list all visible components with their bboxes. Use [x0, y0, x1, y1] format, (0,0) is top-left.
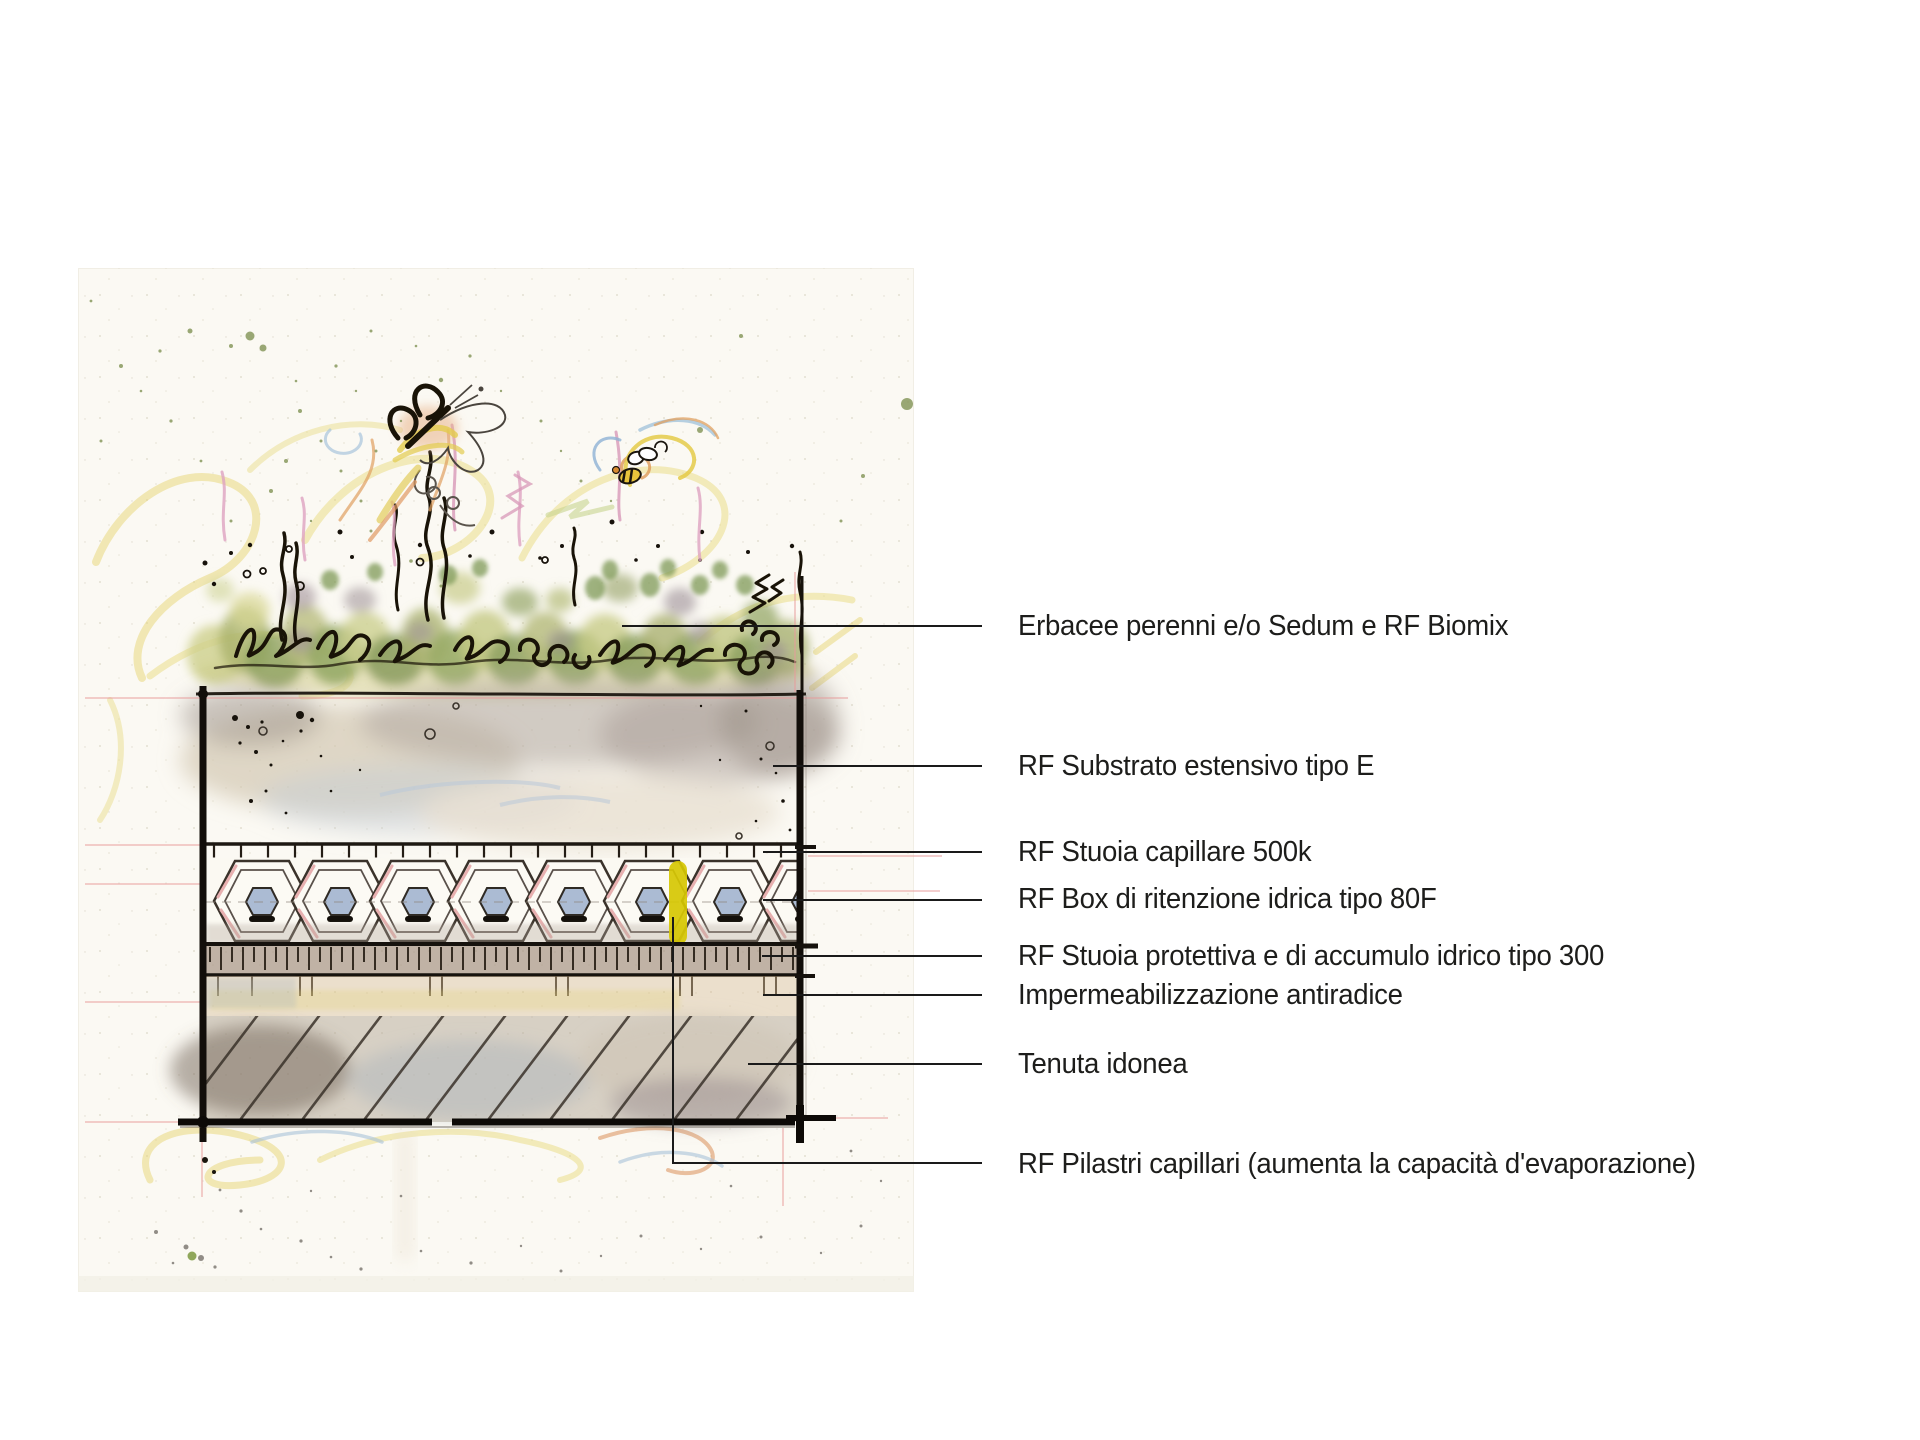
label-capillary-pillars: RF Pilastri capillari (aumenta la capaci… [1018, 1147, 1696, 1181]
label-capillary-mat: RF Stuoia capillare 500k [1018, 835, 1311, 869]
label-protective-mat: RF Stuoia protettiva e di accumulo idric… [1018, 939, 1604, 973]
waterproofing-layer [206, 976, 798, 1016]
label-roof-deck: Tenuta idonea [1018, 1047, 1187, 1081]
label-vegetation: Erbacee perenni e/o Sedum e RF Biomix [1018, 609, 1508, 643]
label-substrate: RF Substrato estensivo tipo E [1018, 749, 1374, 783]
label-waterproofing: Impermeabilizzazione antiradice [1018, 978, 1403, 1012]
label-retention-box: RF Box di ritenzione idrica tipo 80F [1018, 882, 1436, 916]
paper-bottom-smudge [78, 1276, 914, 1292]
retention-box-layer [206, 858, 856, 945]
capillary-pillar [669, 861, 687, 945]
green-roof-section-illustration [0, 0, 1920, 1440]
